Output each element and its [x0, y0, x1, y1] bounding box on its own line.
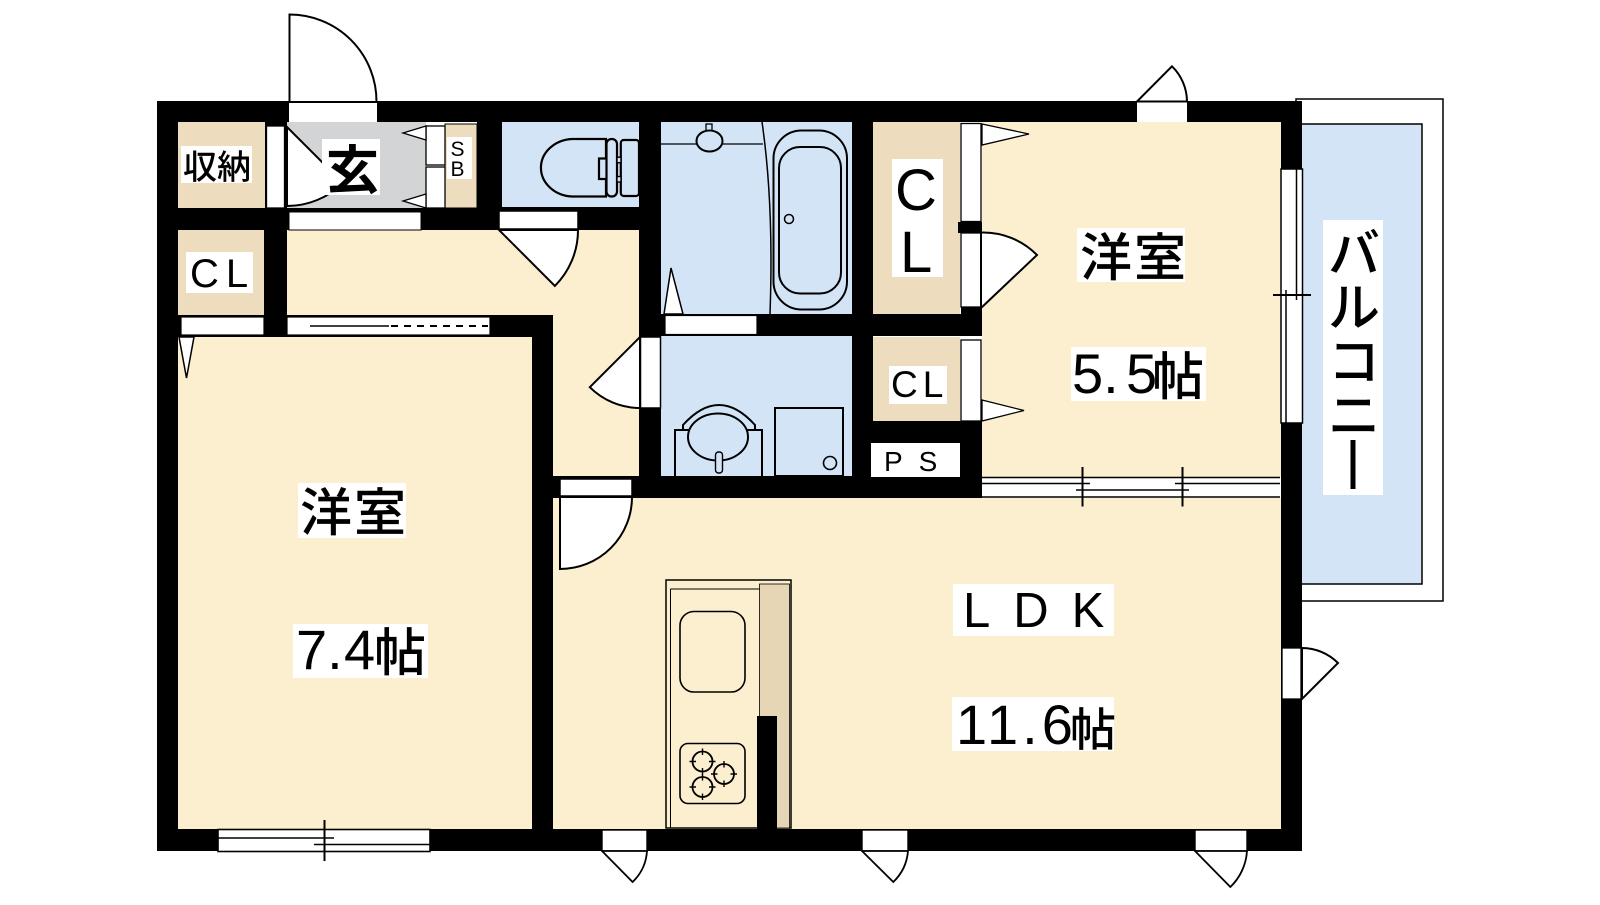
svg-text:5.: 5. — [1072, 342, 1119, 405]
svg-text:CL: CL — [891, 364, 948, 405]
svg-text:C: C — [895, 158, 937, 223]
svg-text:LDK: LDK — [963, 584, 1127, 638]
svg-text:7.: 7. — [296, 618, 343, 681]
svg-text:5: 5 — [1126, 342, 1157, 405]
svg-text:4: 4 — [344, 618, 375, 681]
svg-text:B: B — [451, 158, 465, 181]
svg-text:11.6: 11.6 — [956, 693, 1077, 756]
svg-text:L: L — [900, 220, 932, 285]
svg-text:CL: CL — [190, 252, 255, 296]
svg-text:PS: PS — [884, 446, 953, 477]
